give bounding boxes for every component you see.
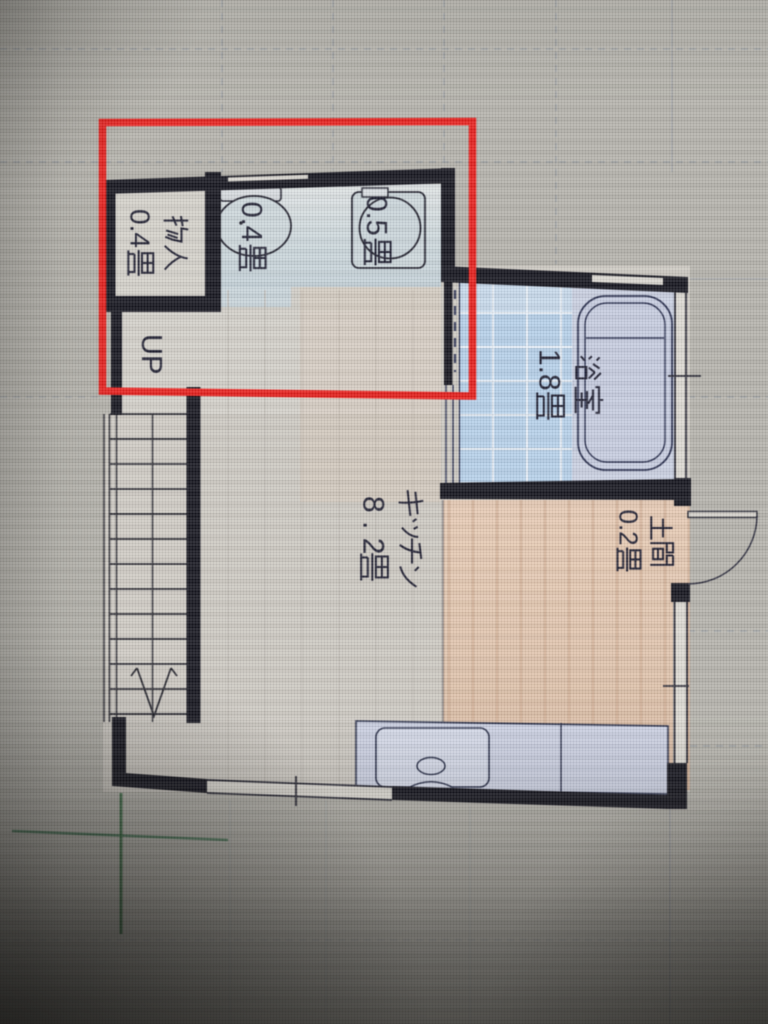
svg-text:1.8: 1.8 — [532, 349, 565, 391]
svg-text:0.2: 0.2 — [613, 510, 643, 546]
svg-text:0.4: 0.4 — [235, 202, 267, 242]
svg-text:UP: UP — [135, 334, 167, 374]
svg-text:8 . 2: 8 . 2 — [356, 496, 389, 554]
svg-text:0.4: 0.4 — [124, 209, 155, 248]
svg-text:0.5: 0.5 — [360, 196, 392, 236]
